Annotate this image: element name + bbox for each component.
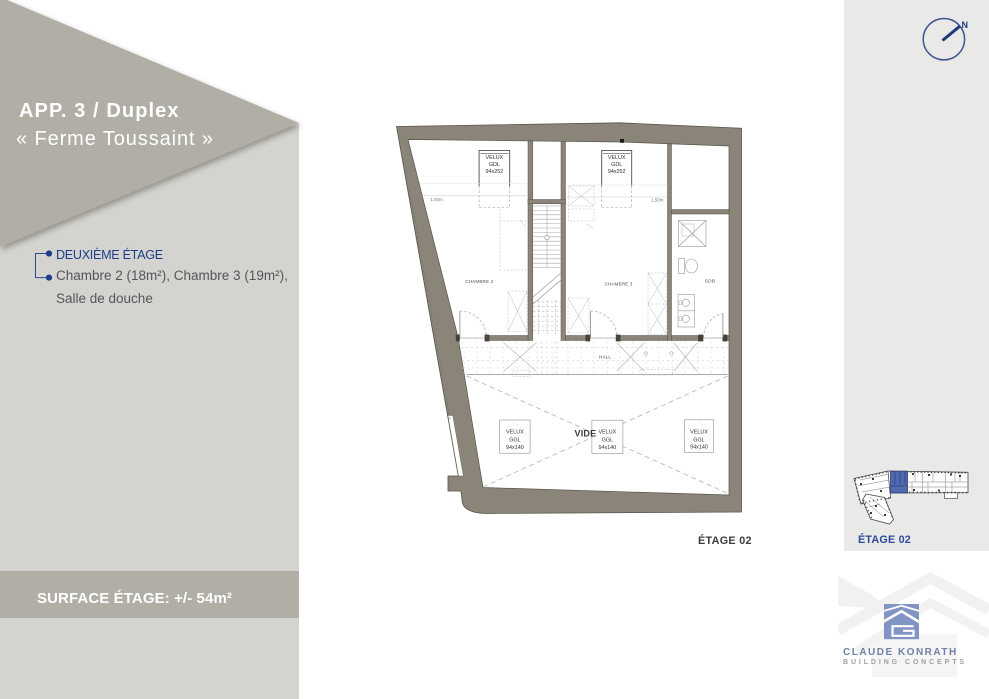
svg-text:CHAMBRE 2: CHAMBRE 2: [465, 279, 493, 284]
svg-text:1,50m: 1,50m: [431, 197, 444, 202]
svg-text:SDB: SDB: [705, 278, 716, 284]
svg-text:VELUX: VELUX: [486, 155, 504, 161]
svg-text:GDL: GDL: [489, 162, 500, 168]
svg-text:GGL: GGL: [509, 438, 520, 444]
svg-text:1,50m: 1,50m: [651, 197, 664, 202]
svg-text:HALL: HALL: [599, 354, 611, 359]
svg-text:CHAMBRE 3: CHAMBRE 3: [605, 281, 633, 286]
svg-text:GGL: GGL: [602, 438, 613, 444]
svg-text:VIDE: VIDE: [575, 429, 597, 439]
svg-text:GDL: GDL: [611, 162, 622, 168]
svg-text:94x252: 94x252: [608, 169, 626, 175]
svg-text:VELUX: VELUX: [599, 430, 617, 436]
svg-text:94x140: 94x140: [690, 445, 708, 451]
svg-text:VELUX: VELUX: [690, 429, 708, 435]
svg-text:VELUX: VELUX: [506, 430, 524, 436]
svg-text:VELUX: VELUX: [608, 155, 626, 161]
svg-text:94x252: 94x252: [486, 169, 504, 175]
svg-text:GGL: GGL: [693, 437, 704, 443]
